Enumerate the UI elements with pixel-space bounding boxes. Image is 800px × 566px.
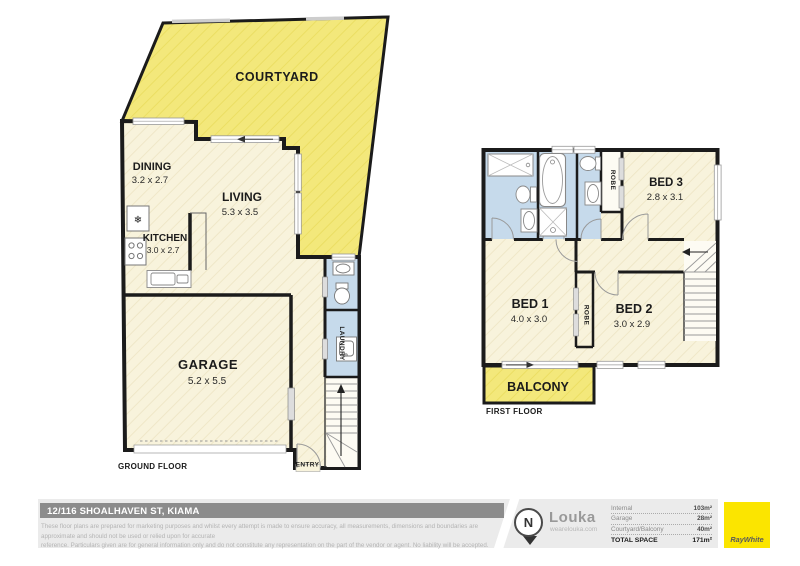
brand-logo: Louka [549, 509, 596, 526]
fridge-icon: ❄ [127, 206, 149, 231]
bed3-robe-label: ROBE [609, 170, 616, 191]
garage-dims: 5.2 x 5.5 [188, 376, 227, 387]
raywhite-logo-text: RayWhite [724, 535, 770, 544]
bed2-dims: 3.0 x 2.9 [614, 319, 650, 330]
ensuite-toilet-icon [516, 186, 537, 203]
area-label: Internal [611, 505, 632, 512]
floorplan-page: ❄ [0, 0, 800, 566]
floorplan-drawing: ❄ [0, 0, 800, 566]
laundry-label: LAUNDRY [338, 326, 345, 361]
powder-toilet-icon [335, 283, 350, 304]
north-label: N [524, 515, 533, 530]
area-summary-table: Internal 103m² Garage 28m² Courtyard/Bal… [611, 503, 712, 544]
ensuite-sink-icon [521, 209, 537, 232]
bed1-dims: 4.0 x 3.0 [511, 314, 547, 325]
area-label: Courtyard/Balcony [611, 526, 664, 533]
brand-url: wearelouka.com [550, 526, 597, 533]
kitchen-sink-icon [147, 271, 191, 288]
area-row-internal: Internal 103m² [611, 503, 712, 514]
ensuite-shower-icon [488, 154, 533, 176]
ground-floor-plan: ❄ [118, 17, 388, 472]
disclaimer: These floor plans are prepared for marke… [41, 522, 499, 551]
area-value: 40m² [697, 526, 712, 533]
area-row-total: TOTAL SPACE 171m² [611, 535, 712, 544]
kitchen-dims: 3.0 x 2.7 [147, 245, 180, 255]
bed1-label: BED 1 [512, 297, 549, 311]
dining-label: DINING [133, 161, 172, 173]
kitchen-label: KITCHEN [143, 233, 187, 244]
bathroom-shower-icon [540, 208, 567, 236]
balcony-label: BALCONY [507, 380, 569, 394]
bed1-robe-label: ROBE [583, 305, 590, 326]
total-label: TOTAL SPACE [611, 537, 658, 544]
first-floor-label: FIRST FLOOR [486, 407, 543, 416]
living-dims: 5.3 x 3.5 [222, 207, 258, 218]
first-floor-plan: BED 3 2.8 x 3.1 BED 1 4.0 x 3.0 BED 2 3.… [483, 146, 721, 416]
area-row-courtyard-balcony: Courtyard/Balcony 40m² [611, 525, 712, 536]
garage-label: GARAGE [178, 357, 238, 372]
north-arrow-pointer-icon [523, 536, 537, 545]
powder-sink-icon [333, 262, 354, 275]
area-value: 28m² [697, 515, 712, 522]
raywhite-logo: RayWhite [724, 502, 770, 548]
wc-sink-icon [585, 182, 601, 205]
ground-floor-label: GROUND FLOOR [118, 462, 187, 471]
svg-text:❄: ❄ [134, 215, 142, 226]
disclaimer-line-2: reference. Particulars given are for gen… [41, 541, 499, 551]
north-arrow-icon: N [514, 508, 543, 537]
bathtub-icon [540, 154, 566, 207]
living-label: LIVING [222, 190, 262, 204]
total-value: 171m² [692, 537, 712, 544]
bed2-label: BED 2 [616, 302, 653, 316]
bed3-label: BED 3 [649, 177, 683, 189]
bed3-dims: 2.8 x 3.1 [647, 192, 683, 203]
dining-dims: 3.2 x 2.7 [132, 175, 168, 186]
area-row-garage: Garage 28m² [611, 514, 712, 525]
wc-toilet-icon [580, 157, 601, 171]
courtyard-label: COURTYARD [235, 70, 318, 84]
disclaimer-line-1: These floor plans are prepared for marke… [41, 522, 499, 541]
entry-label: ENTRY [296, 462, 320, 469]
area-label: Garage [611, 515, 632, 522]
address-bar: 12/116 SHOALHAVEN ST, KIAMA [40, 503, 504, 518]
area-value: 103m² [694, 505, 712, 512]
address-text: 12/116 SHOALHAVEN ST, KIAMA [40, 503, 504, 517]
